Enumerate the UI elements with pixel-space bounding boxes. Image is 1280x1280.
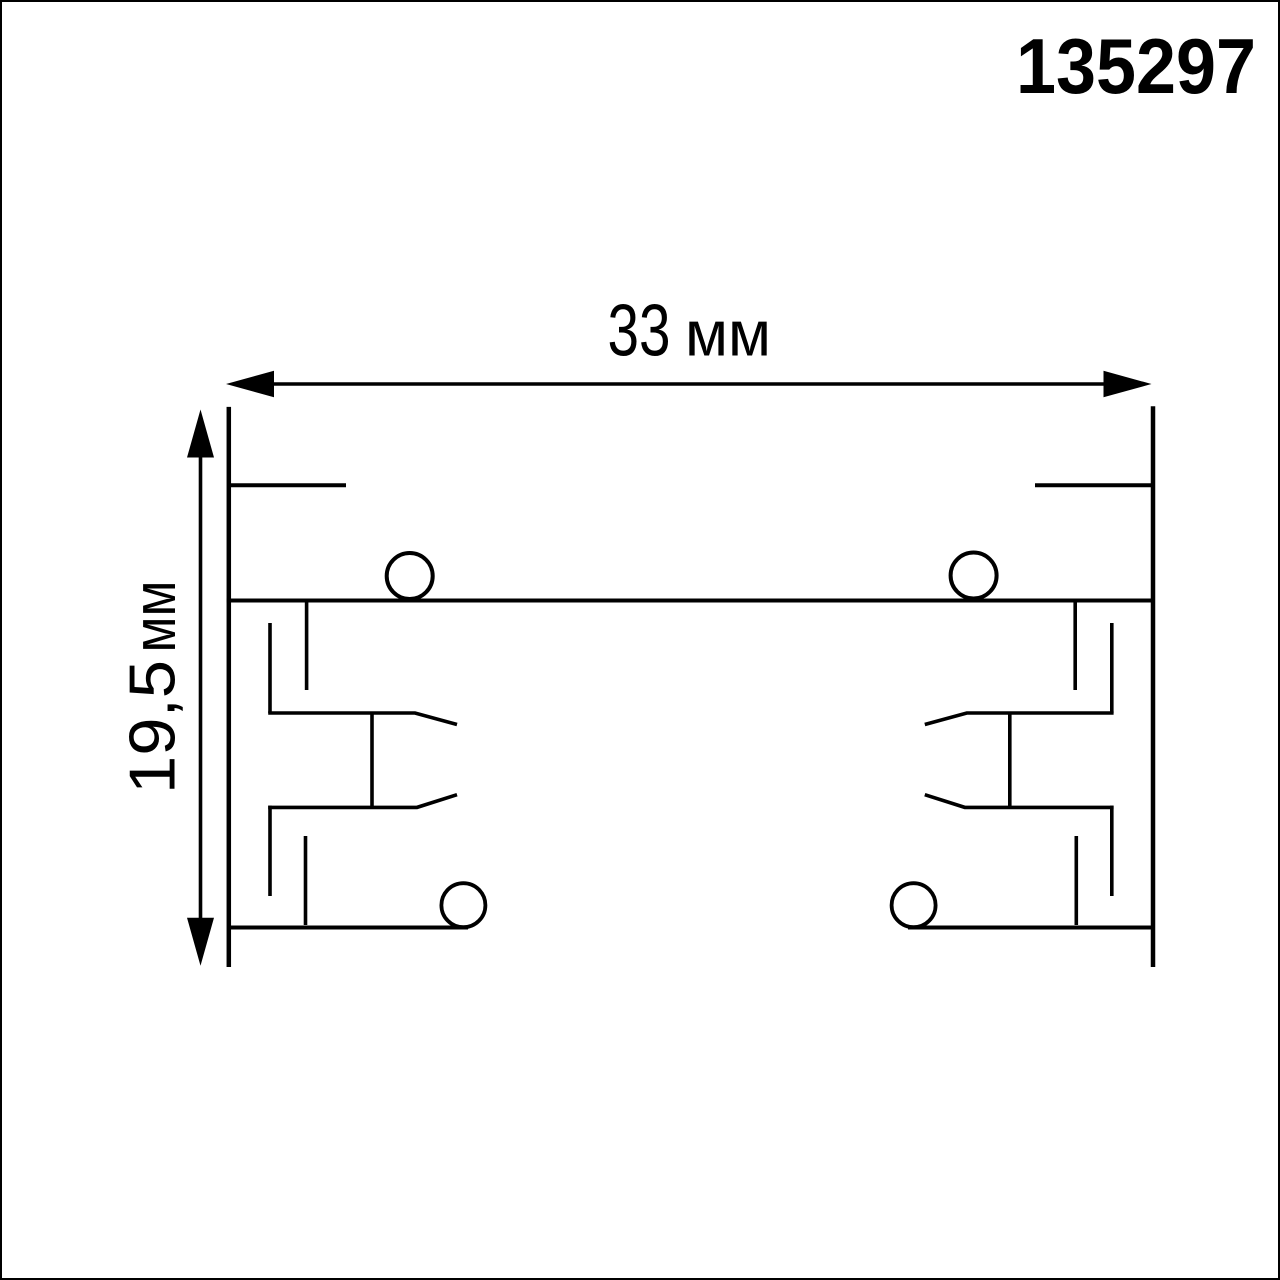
svg-text:мм: мм bbox=[685, 297, 771, 369]
svg-text:19,5: 19,5 bbox=[116, 660, 189, 794]
svg-text:мм: мм bbox=[121, 581, 188, 653]
svg-text:135297: 135297 bbox=[1016, 22, 1256, 110]
svg-text:33: 33 bbox=[608, 290, 671, 371]
